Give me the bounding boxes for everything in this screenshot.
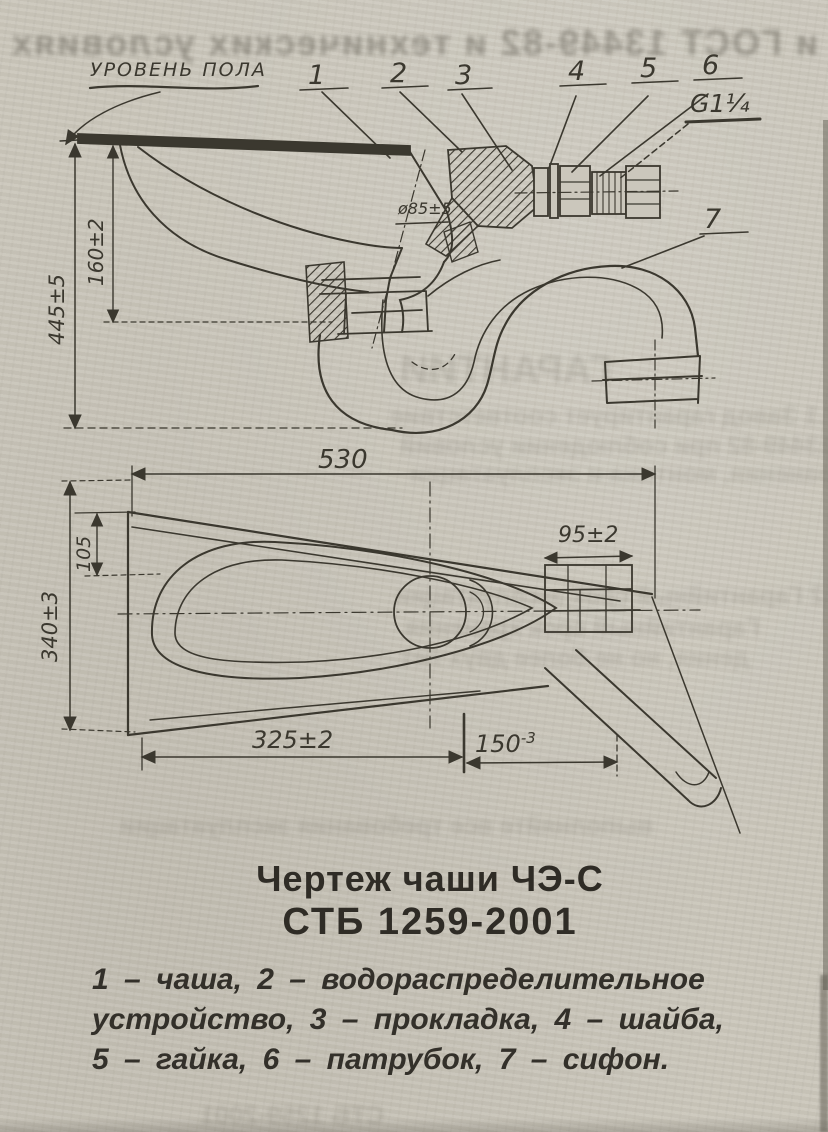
caption-title: Чертеж чаши ЧЭ-С (150, 858, 710, 900)
plan-view: 530 95±2 (38, 445, 740, 833)
outlet-funnel-right (400, 262, 444, 332)
section-cut-line (652, 597, 740, 833)
outlet-funnel-left (384, 248, 402, 332)
dim-outlet-from-left: 325±2 (252, 726, 333, 754)
gasket-item3 (534, 168, 548, 216)
floor-label-underline (90, 86, 258, 88)
dim-width: 340±3 (38, 591, 62, 662)
nut-item5 (560, 166, 590, 216)
page-corner-shadow (820, 975, 828, 1132)
callout-5: 5 (640, 53, 657, 84)
plan-bottom-edge (128, 686, 548, 735)
callout-7: 7 (704, 204, 721, 235)
siphon-inner-wall (382, 277, 663, 400)
bowl-back-slope (138, 147, 402, 248)
side-view-elevation: УРОВЕНЬ ПОЛА 445±5 160±2 ø85±5 (45, 50, 760, 433)
callout-4: 4 (568, 56, 585, 87)
callout-1: 1 (308, 60, 325, 91)
patrubok-plan (545, 565, 632, 632)
dim-outlet-150: 150-3 (475, 729, 536, 758)
legend-line-3: 5 – гайка, 6 – патрубок, 7 – сифон. (92, 1040, 792, 1080)
caption-standard: СТБ 1259-2001 (150, 900, 710, 944)
page-bottom-shadow (0, 1118, 828, 1132)
thread-size-label: G1¼ (690, 89, 750, 118)
floor-level-label: УРОВЕНЬ ПОЛА (90, 59, 267, 81)
callout-6: 6 (702, 50, 719, 81)
callout-3: 3 (455, 60, 472, 91)
callout-2: 2 (390, 58, 407, 89)
dim-line-150 (467, 762, 617, 763)
legend-line-1: 1 – чаша, 2 – водораспределительное (92, 960, 792, 1000)
washer-item4 (550, 164, 558, 218)
gasket-lower (306, 262, 348, 342)
technical-drawing: УРОВЕНЬ ПОЛА 445±5 160±2 ø85±5 (0, 0, 828, 850)
dim-spud-length: 95±2 (558, 523, 618, 548)
dim-height-total: 445±5 (45, 274, 69, 345)
dim-length: 530 (318, 445, 368, 475)
thread-label-underline (686, 119, 760, 122)
page-edge-shadow (823, 120, 828, 990)
outlet-axis-centerline (372, 150, 425, 348)
drawing-caption: Чертеж чаши ЧЭ-С СТБ 1259-2001 (150, 858, 710, 944)
scanned-passport-page: и ГОСТ 13449-82 и технических условиях Г… (0, 0, 828, 1132)
bowl-rim-section (78, 134, 410, 155)
dim-bowl-depth: 160±2 (84, 218, 108, 286)
legend-line-2: устройство, 3 – прокладка, 4 – шайба, (92, 1000, 792, 1040)
parts-legend: 1 – чаша, 2 – водораспределительное устр… (92, 960, 792, 1080)
dim-rim-offset: 105 (73, 536, 95, 572)
dim-line-95 (545, 556, 632, 558)
